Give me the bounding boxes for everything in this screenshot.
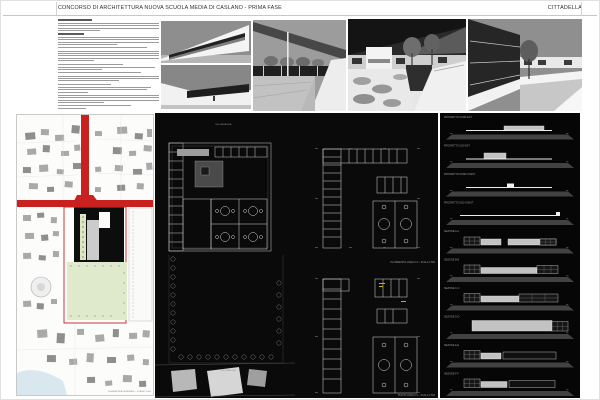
text-line: [58, 51, 159, 52]
map-building: [64, 181, 72, 188]
text-line: [58, 42, 159, 43]
map-building: [23, 215, 31, 221]
level-mark: [566, 219, 568, 220]
render-thumbnail-4: [348, 19, 466, 111]
ground-band: [446, 334, 574, 339]
text-heading-line: [58, 19, 92, 21]
map-building: [107, 357, 116, 363]
map-building: [143, 145, 151, 152]
render-1-graphic: [161, 21, 251, 63]
text-line: [58, 64, 123, 65]
map-building: [105, 380, 112, 386]
map-building: [133, 169, 142, 175]
plan-level-1: [315, 148, 420, 248]
render-thumbnail-5: [468, 19, 582, 111]
ground-band: [446, 220, 574, 225]
elevation-volume: [556, 212, 560, 215]
map-building: [53, 251, 59, 257]
ground-band: [446, 391, 574, 396]
street-label-bottom: VIA STAZIONE: [221, 369, 236, 372]
elevation-volume: [503, 352, 556, 359]
elevation-label: PROSPETTO NORD-EST: [444, 116, 472, 119]
text-paragraph: [58, 95, 159, 103]
text-line: [58, 72, 141, 73]
project-motto: CITTADELLA: [548, 5, 582, 11]
map-building: [23, 253, 31, 259]
level-mark: [450, 190, 452, 191]
text-line: [58, 58, 159, 59]
render-thumbnail-2: [161, 65, 251, 109]
elevation-volume: [481, 353, 501, 359]
level-mark: [450, 276, 452, 277]
map-building: [113, 147, 122, 154]
map-building: [23, 301, 31, 307]
ground-band: [446, 363, 574, 368]
map-building: [86, 353, 94, 362]
text-line: [58, 30, 100, 31]
site-plan-map: PLANIMETRIA GENERALE - SCALA 1:2000: [16, 114, 154, 396]
elevation-volume: [504, 126, 544, 130]
ground-band: [446, 163, 574, 168]
elevation-strip: PROSPETTO SUD-OVEST: [444, 202, 574, 226]
elevation-strip: SEZIONE E-E: [444, 344, 574, 368]
elevation-volume: [507, 184, 514, 188]
text-line: [58, 67, 155, 68]
text-line: [58, 105, 131, 106]
map-building: [77, 329, 84, 335]
map-building: [25, 233, 34, 239]
level-mark: [450, 333, 452, 334]
map-building: [51, 299, 57, 304]
map-building: [37, 213, 44, 218]
elevation-strip: PROSPETTO NORD-OVEST: [444, 173, 574, 197]
map-building: [123, 375, 132, 382]
map-building: [27, 148, 36, 155]
map-building: [39, 165, 48, 172]
map-building: [37, 303, 44, 309]
elevation-label: SEZIONE B-B: [444, 259, 460, 262]
level-mark: [566, 390, 568, 391]
text-paragraph: [58, 23, 159, 31]
text-paragraph: [58, 33, 159, 35]
plans-caption-bottom: PIANTA LIVELLO 2 - SCALA 1:500: [398, 394, 436, 397]
elevation-label: SEZIONE F-F: [444, 373, 459, 376]
level-mark: [566, 304, 568, 305]
level-mark: [450, 247, 452, 248]
map-building: [115, 165, 123, 171]
text-line: [58, 69, 102, 70]
ground-band: [446, 192, 574, 197]
map-building: [61, 151, 69, 156]
text-line: [58, 84, 111, 85]
level-mark: [450, 219, 452, 220]
plan-courts: [211, 199, 267, 249]
level-mark: [566, 190, 568, 191]
elevation-label: PROSPETTO NORD-OVEST: [444, 173, 476, 176]
map-building: [23, 167, 31, 173]
text-line: [58, 78, 159, 79]
level-mark: [566, 162, 568, 163]
text-line: [58, 92, 88, 93]
map-building: [47, 355, 56, 362]
map-building: [74, 144, 81, 151]
level-mark: [566, 247, 568, 248]
elevation-label: SEZIONE C-C: [444, 287, 460, 290]
street-label-top: VIA CAMPAGNA: [215, 123, 232, 126]
elevations-panel: PROSPETTO NORD-ESTPROSPETTO SUD-ESTPROSP…: [440, 113, 580, 398]
elevation-label: SEZIONE D-D: [444, 316, 460, 319]
render-4-graphic: [348, 19, 466, 111]
text-paragraph: [58, 87, 159, 93]
plans-caption-mid: PLANIMETRIA LIVELLO 1 - SCALA 1:500: [390, 261, 435, 264]
text-line: [58, 23, 159, 24]
level-mark: [450, 162, 452, 163]
map-building: [127, 355, 134, 361]
map-building: [41, 234, 48, 241]
floor-plans-panel: VIA CAMPAGNA VIA STAZIONE: [155, 113, 438, 398]
header-rule: [3, 15, 597, 16]
render-thumbnail-1: [161, 21, 251, 63]
elevation-baseline: [466, 159, 552, 160]
map-building: [129, 333, 137, 339]
render-thumbnail-3: [253, 20, 346, 111]
text-paragraph: [58, 37, 159, 45]
map-building: [95, 131, 102, 136]
elevation-volume: [509, 381, 555, 388]
elevation-strip: PROSPETTO NORD-EST: [444, 116, 574, 140]
level-mark: [450, 361, 452, 362]
map-building: [142, 330, 150, 338]
plan-ground-level: [169, 143, 271, 251]
map-building: [71, 125, 80, 134]
map-building: [56, 333, 65, 343]
ground-band: [446, 277, 574, 282]
render-3-graphic: [253, 20, 346, 111]
elevation-strip: PROSPETTO SUD-EST: [444, 145, 574, 169]
map-building: [73, 163, 81, 169]
text-line: [58, 60, 94, 61]
elevation-volume: [481, 268, 537, 274]
level-mark: [566, 276, 568, 277]
map-building: [39, 255, 46, 261]
map-building: [95, 167, 101, 172]
elevation-volume: [472, 321, 552, 332]
level-mark: [566, 133, 568, 134]
map-building: [95, 334, 105, 342]
elevation-volume: [481, 296, 519, 302]
map-caption: PLANIMETRIA GENERALE - SCALA 1:2000: [108, 390, 152, 393]
map-building: [41, 129, 49, 135]
competition-board: CONCORSO DI ARCHITETTURA NUOVA SCUOLA ME…: [0, 0, 600, 400]
elevation-baseline: [466, 187, 552, 188]
elevation-label: SEZIONE E-E: [444, 344, 460, 347]
render-5-graphic: [468, 19, 582, 111]
map-building: [51, 217, 57, 223]
elevation-label: PROSPETTO SUD-OVEST: [444, 202, 474, 205]
text-line: [58, 28, 159, 29]
map-building: [137, 183, 144, 189]
map-building: [69, 359, 77, 365]
site-plan-graphic: PLANIMETRIA GENERALE - SCALA 1:2000: [17, 115, 153, 395]
plan-entrance-bar: [177, 149, 209, 156]
map-building: [87, 377, 95, 383]
map-building: [29, 183, 38, 189]
map-building: [113, 329, 119, 337]
text-line: [58, 39, 159, 40]
map-building: [37, 329, 48, 338]
plan-courtyard-trees: [171, 257, 281, 359]
text-paragraph: [58, 51, 159, 62]
text-line: [58, 44, 117, 45]
map-building: [47, 187, 54, 192]
elevation-strip: SEZIONE B-B: [444, 259, 574, 283]
header-divider-right: [581, 2, 582, 15]
elevation-label: SEZIONE A-A: [444, 230, 459, 233]
level-mark: [566, 333, 568, 334]
map-building: [53, 231, 59, 236]
elevation-strip: SEZIONE D-D: [444, 316, 574, 340]
text-paragraph: [58, 47, 159, 48]
elevation-strip: SEZIONE A-A: [444, 230, 574, 254]
text-line: [58, 89, 147, 90]
text-line: [58, 97, 159, 98]
elevations-graphic: PROSPETTO NORD-ESTPROSPETTO SUD-ESTPROSP…: [440, 113, 580, 398]
text-paragraph: [58, 67, 159, 70]
text-heading-line: [58, 33, 84, 35]
text-line: [58, 53, 159, 54]
text-line: [58, 47, 147, 48]
ground-band: [446, 135, 574, 140]
text-paragraph: [58, 64, 159, 65]
map-building: [117, 126, 127, 134]
map-building: [135, 133, 143, 140]
board-title: CONCORSO DI ARCHITETTURA NUOVA SCUOLA ME…: [58, 5, 282, 11]
text-line: [58, 76, 159, 77]
elevation-strip: SEZIONE C-C: [444, 287, 574, 311]
text-paragraph: [58, 105, 159, 108]
render-2-graphic: [161, 65, 251, 109]
road-north: [81, 115, 89, 201]
text-line: [58, 25, 159, 26]
text-line: [58, 108, 86, 109]
elevation-volume: [481, 239, 501, 245]
level-mark: [566, 361, 568, 362]
text-paragraph: [58, 72, 159, 73]
text-paragraph: [58, 76, 159, 82]
elevation-baseline: [460, 215, 560, 216]
text-line: [58, 37, 159, 38]
text-line: [58, 102, 104, 103]
text-line: [58, 87, 151, 88]
level-mark: [450, 390, 452, 391]
text-paragraph: [58, 19, 159, 21]
level-mark: [450, 304, 452, 305]
map-building: [147, 129, 152, 137]
sports-field: [67, 262, 127, 320]
level-mark: [450, 133, 452, 134]
text-line: [58, 55, 159, 56]
elevation-volume: [484, 153, 506, 159]
text-line: [58, 95, 159, 96]
elevation-label: PROSPETTO SUD-EST: [444, 145, 470, 148]
map-building: [95, 187, 101, 192]
text-line: [58, 100, 159, 101]
map-building: [139, 381, 146, 387]
text-paragraph: [58, 84, 159, 85]
ground-band: [446, 306, 574, 311]
header-divider-left: [56, 2, 57, 15]
ground-band: [446, 249, 574, 254]
map-building: [25, 132, 36, 140]
elevation-volume: [481, 382, 507, 388]
plan-context-buildings: [155, 363, 295, 397]
floor-plans-graphic: VIA CAMPAGNA VIA STAZIONE: [155, 113, 438, 398]
map-building: [146, 162, 153, 169]
map-building: [129, 151, 136, 156]
elevation-strip: SEZIONE F-F: [444, 373, 574, 397]
project-description-text: [58, 19, 159, 112]
lake: [17, 370, 67, 395]
plan-level-2: [315, 278, 420, 393]
text-line: [58, 80, 119, 81]
map-building: [43, 145, 50, 152]
map-building: [143, 359, 149, 365]
road-main: [17, 200, 153, 207]
